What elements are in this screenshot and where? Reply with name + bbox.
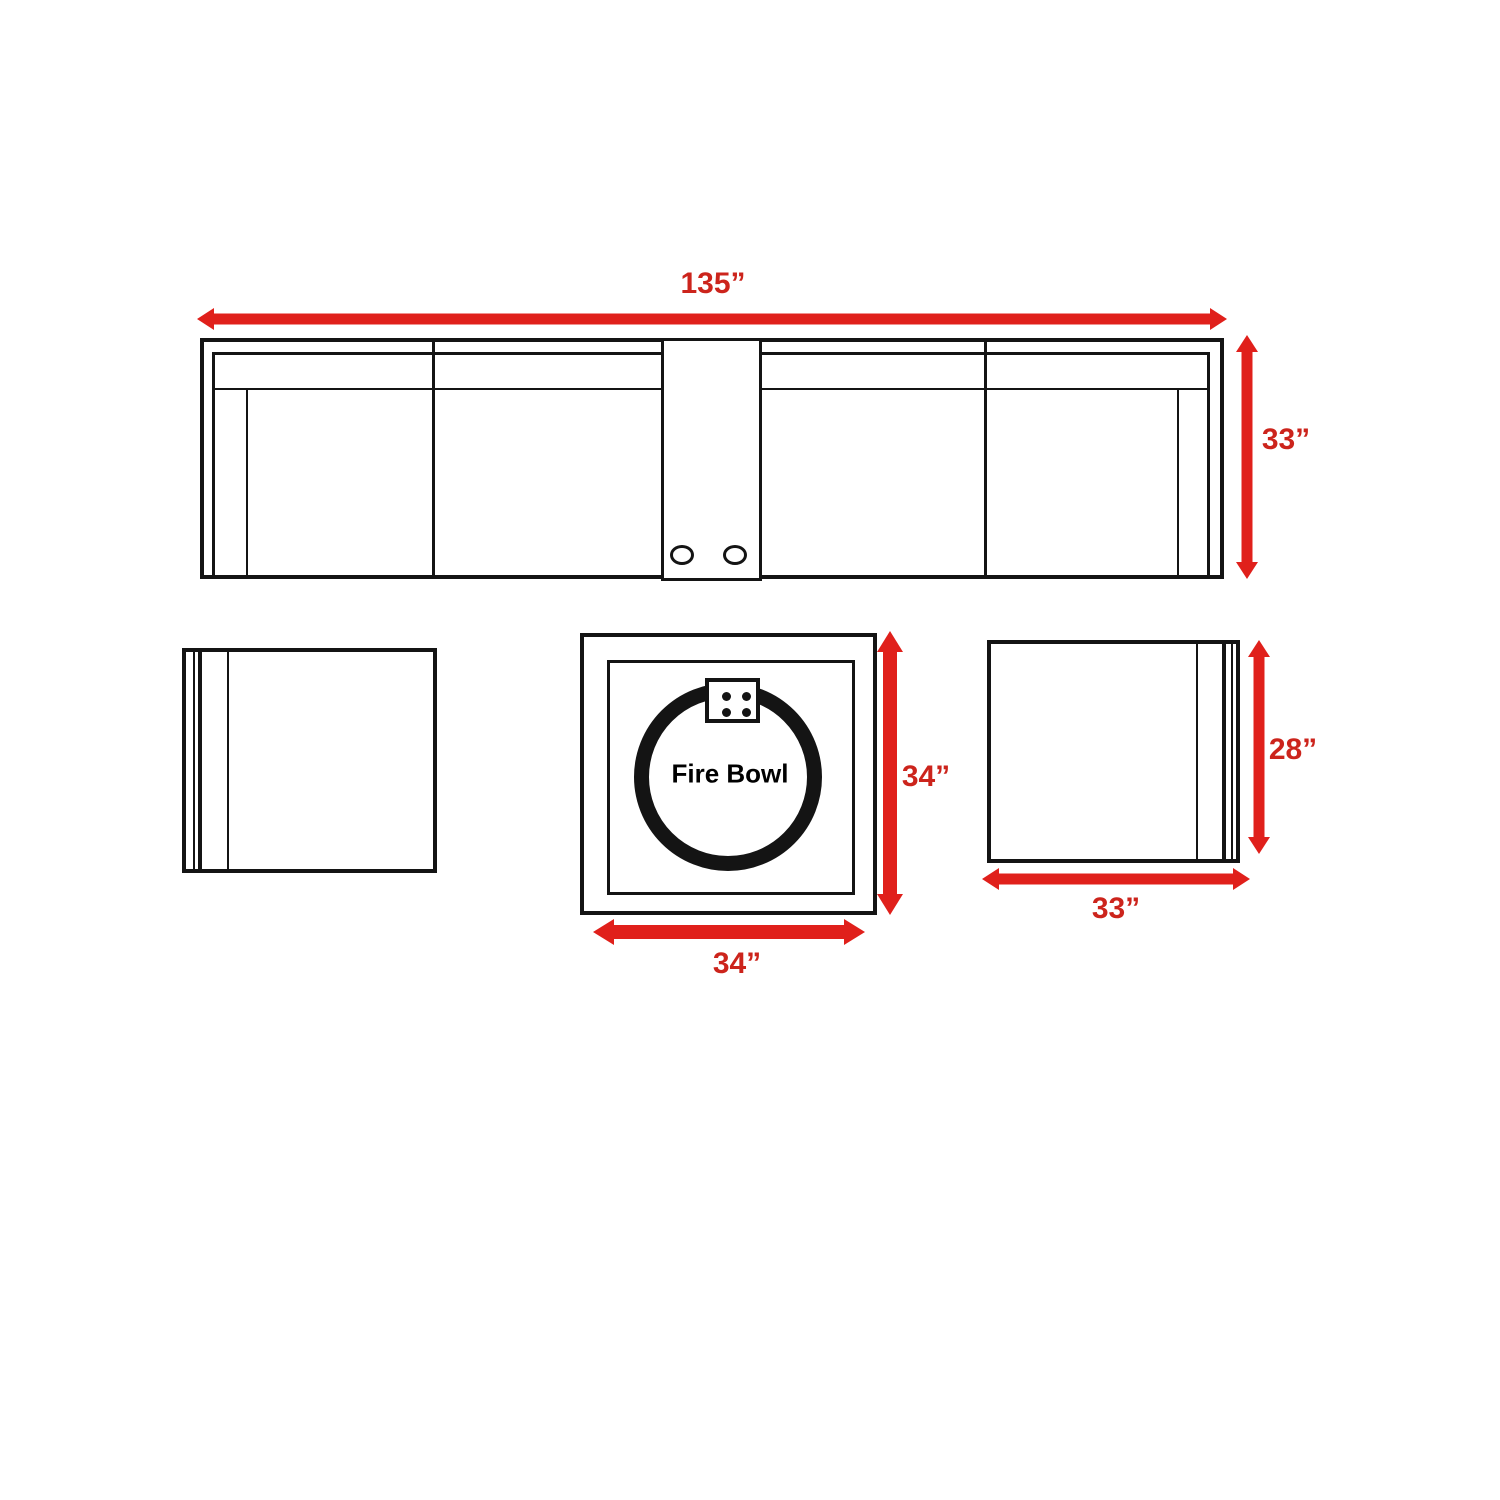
right-chair-depth-arrow-shaft [1254, 650, 1265, 844]
sofa-center-console [661, 338, 762, 581]
diagram-canvas: 135” 33” [0, 0, 1500, 1500]
right-chair-depth-label: 28” [1269, 735, 1317, 765]
fire-table-height-label: 34” [902, 762, 950, 792]
right-chair-width-arrow-shaft [992, 874, 1240, 885]
right-chair-outline [987, 640, 1240, 863]
sofa-depth-label: 33” [1262, 425, 1310, 455]
burner-icon [705, 678, 760, 723]
left-chair-back-line-outer [193, 650, 195, 871]
fire-table-height-arrow-shaft [883, 645, 897, 901]
fire-bowl-label: Fire Bowl [671, 759, 788, 790]
sofa-seat-divider-left [432, 338, 435, 579]
cup-holder-icon [670, 545, 694, 565]
sofa-left-arm-line [246, 390, 248, 576]
burner-dot [742, 708, 751, 717]
fire-table-width-arrow [593, 913, 865, 951]
sofa-depth-arrow-shaft [1242, 345, 1253, 569]
sofa-seat-divider-right [984, 338, 987, 579]
sofa-depth-arrow [1229, 335, 1265, 579]
sofa-width-arrow [197, 301, 1227, 337]
sofa-width-label: 135” [680, 269, 745, 299]
burner-dot [722, 708, 731, 717]
right-chair-back-line-thick [1222, 642, 1226, 861]
fire-table-width-label: 34” [713, 949, 761, 979]
burner-dot [742, 692, 751, 701]
left-chair-back-line-inner [227, 650, 229, 871]
left-chair-back-line-thick [198, 650, 202, 871]
fire-table-width-arrow-shaft [607, 925, 851, 939]
right-chair-width-label: 33” [1092, 894, 1140, 924]
right-chair-back-line-outer [1231, 642, 1233, 861]
sofa-width-arrow-shaft [207, 314, 1217, 325]
sofa-right-arm-line [1177, 390, 1179, 576]
right-chair-back-line-inner [1196, 642, 1198, 861]
left-chair-outline [182, 648, 437, 873]
cup-holder-icon [723, 545, 747, 565]
burner-dot [722, 692, 731, 701]
